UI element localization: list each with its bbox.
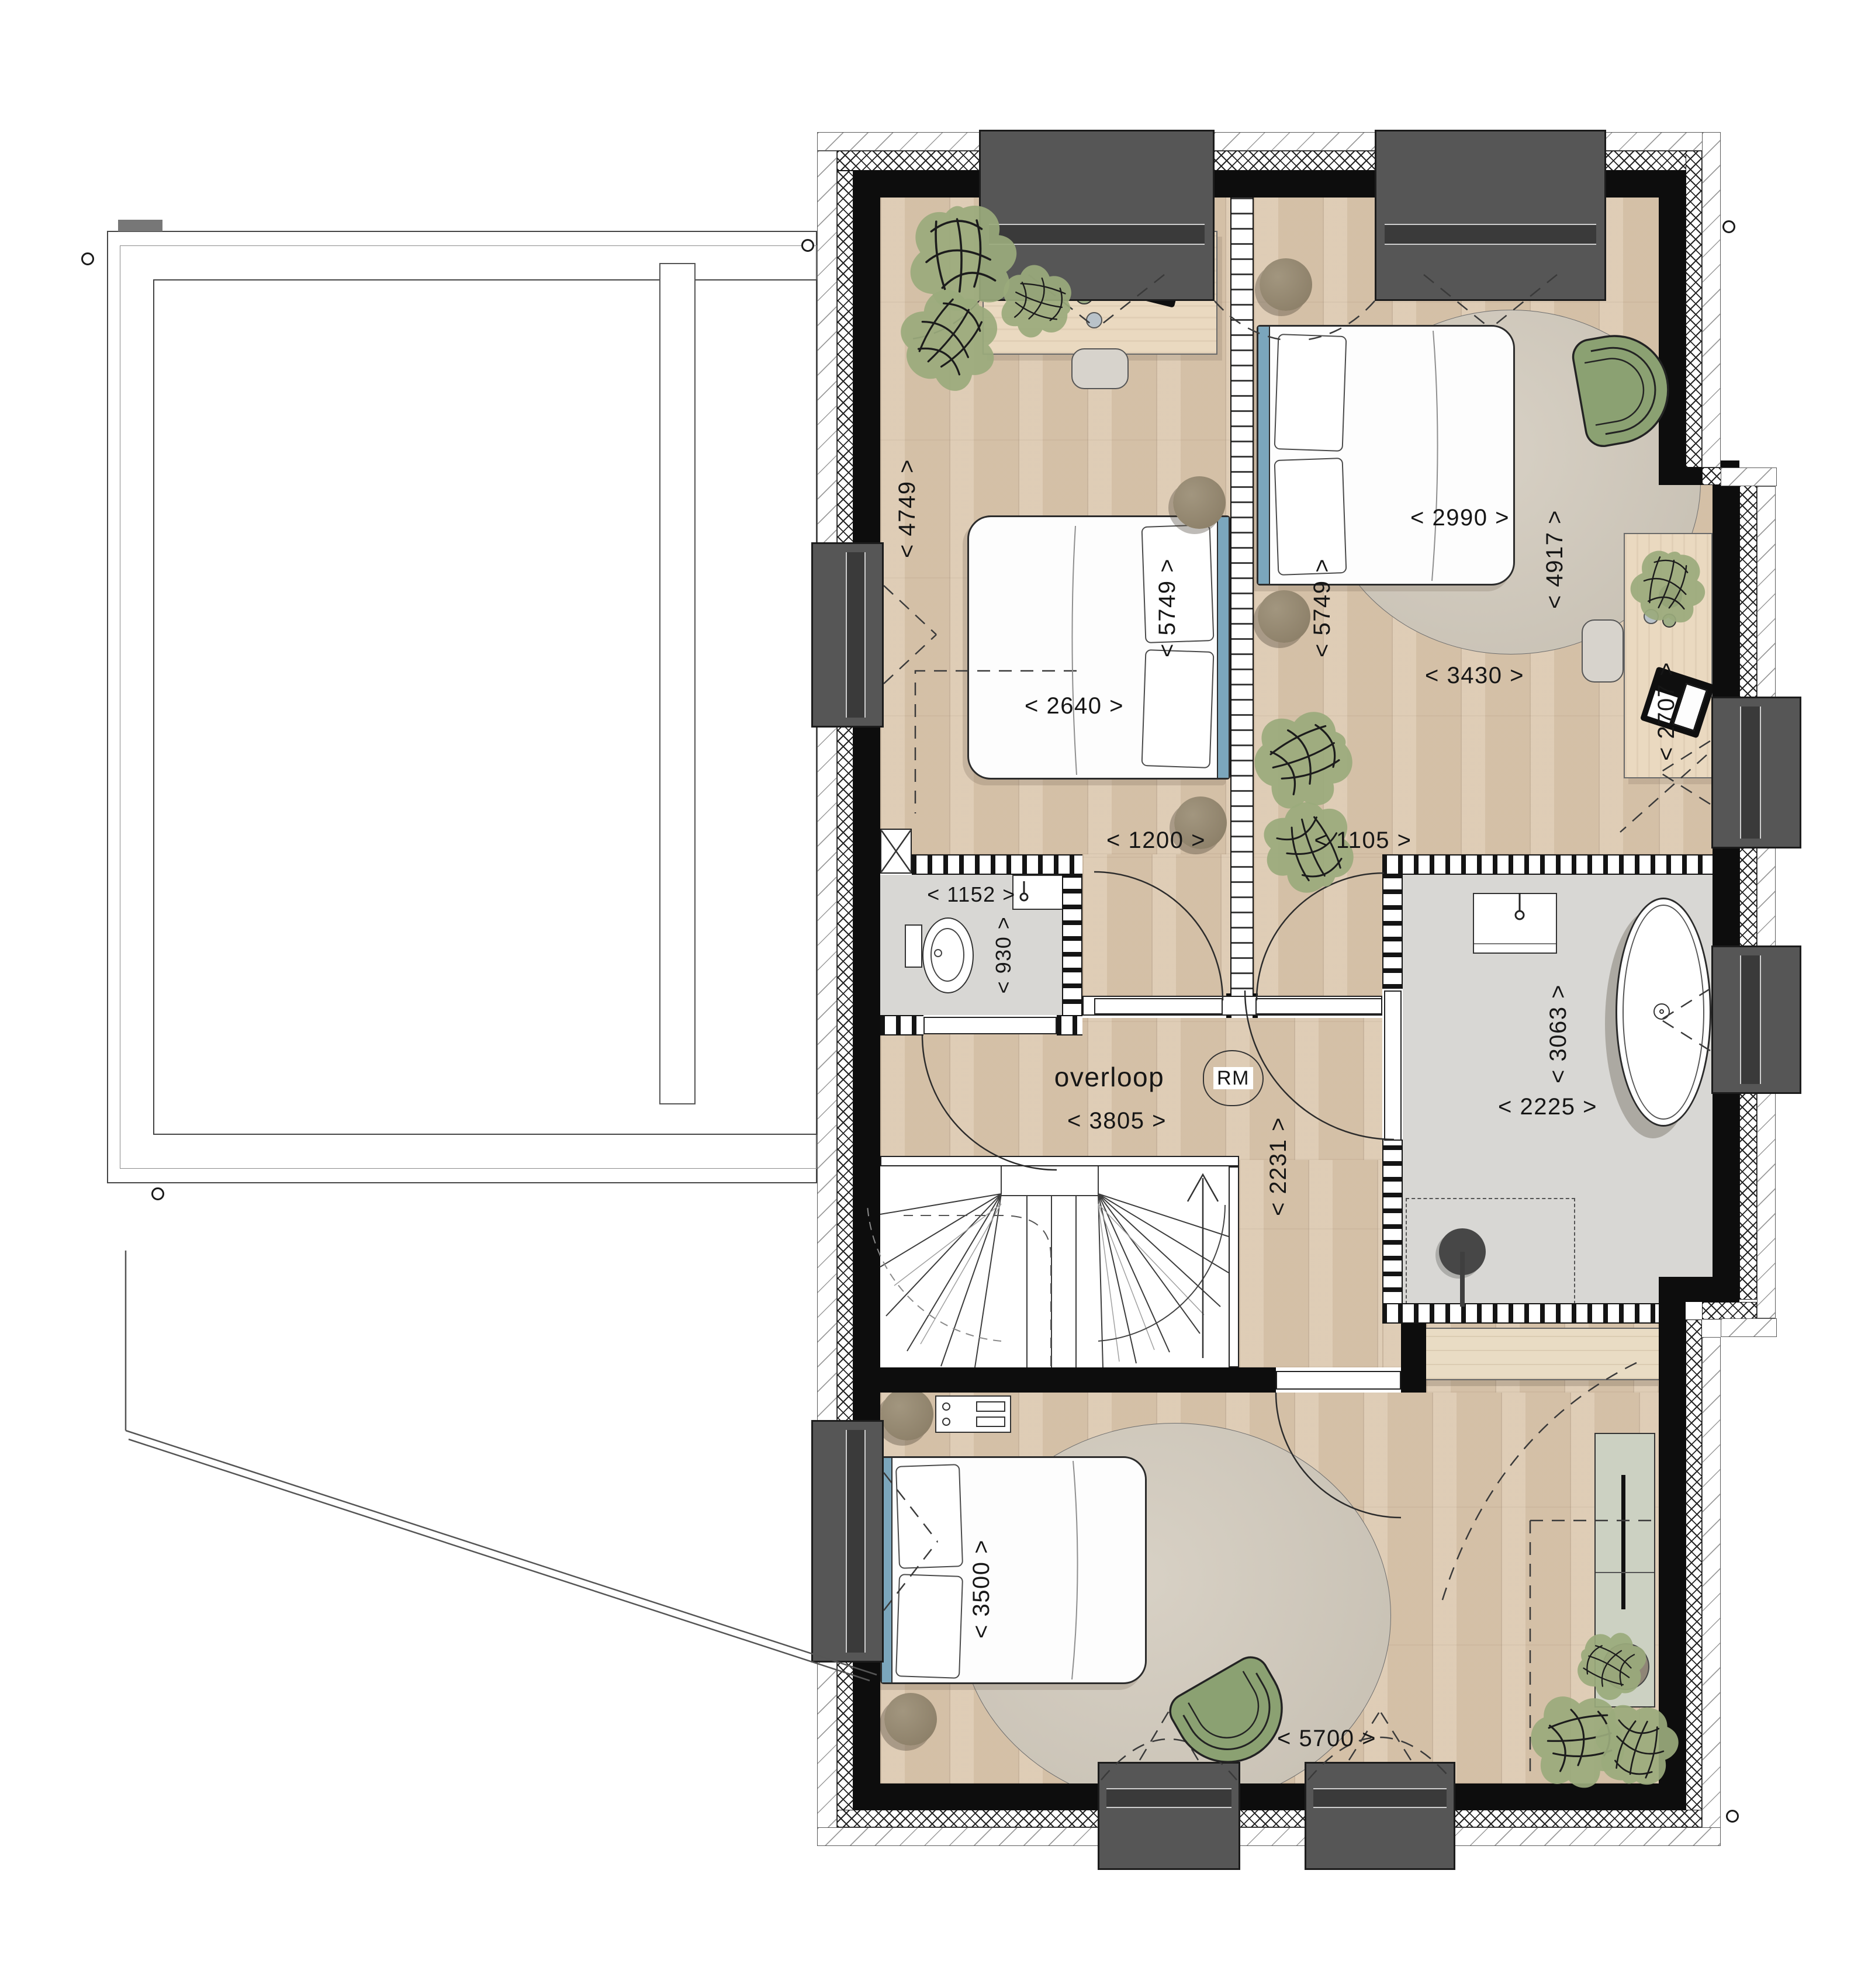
stair-up-arrow (1188, 1175, 1218, 1358)
stair-walkline (904, 1215, 1051, 1366)
dimension-label-1105: < 1105 > (1314, 829, 1412, 852)
dimension-label-4749: < 4749 > (895, 459, 919, 558)
dimension-label-1200: < 1200 > (1106, 829, 1206, 852)
dimension-label-3805: < 3805 > (1067, 1109, 1167, 1132)
dimension-label-2640: < 2640 > (1025, 694, 1124, 718)
dimension-label-1152: < 1152 > (927, 884, 1015, 905)
dimension-label-2225: < 2225 > (1498, 1095, 1597, 1118)
lower-roof-lines (126, 1251, 877, 1681)
dimension-label-3500: < 3500 > (970, 1539, 993, 1639)
staircase (880, 1166, 1229, 1367)
dimension-label-930: < 930 > (993, 916, 1014, 994)
dimension-label-4917: < 4917 > (1543, 510, 1566, 609)
staircase-secondary-lines (894, 1204, 1204, 1362)
roof-slope-dashed-lines (884, 275, 1710, 1780)
dimension-label-2231: < 2231 > (1267, 1117, 1290, 1216)
roof-drain (1722, 220, 1735, 233)
dimension-label-3063: < 3063 > (1547, 984, 1570, 1083)
dimension-label-2990: < 2990 > (1410, 506, 1510, 529)
stair-winder-arc-right (1098, 1205, 1225, 1341)
room-label-overloop: overloop (1054, 1064, 1164, 1090)
faucets (1020, 881, 1524, 919)
dimension-label-5749-right: < 5749 > (1310, 558, 1334, 657)
smoke-detector-badge: RM (1213, 1067, 1253, 1089)
dimension-label-5700: < 5700 > (1277, 1727, 1376, 1750)
dimension-label-5749-left: < 5749 > (1156, 558, 1179, 657)
floor-plan-page: { "document": { "kind": "architectural f… (0, 0, 1875, 1988)
roof-drain (801, 239, 814, 252)
roof-drain (81, 252, 94, 265)
bed-linen-fold-lines (1072, 331, 1438, 1679)
dimension-label-3430: < 3430 > (1425, 664, 1524, 687)
dimension-label-2707: < 2707 > (1655, 661, 1678, 761)
roof-drain (151, 1187, 164, 1200)
duct-shaft-cross (881, 830, 911, 872)
roof-drain (1726, 1810, 1739, 1823)
plan-linework-overlay (0, 0, 1875, 1988)
